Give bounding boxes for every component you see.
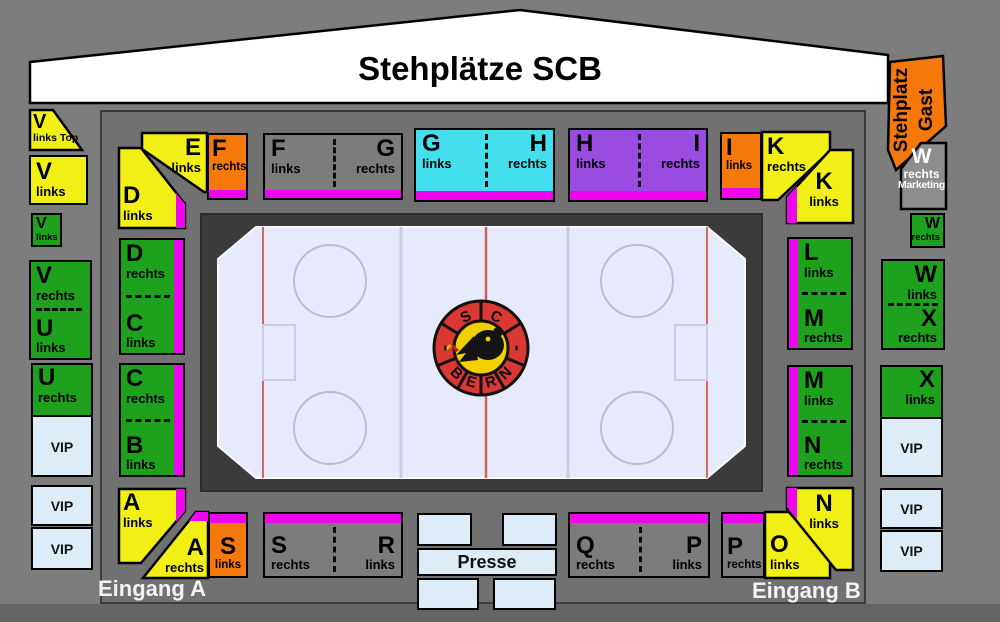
a-links-label: A links bbox=[123, 491, 153, 529]
magenta-strip bbox=[174, 365, 183, 475]
entrance-a-label: Eingang A bbox=[98, 578, 206, 601]
magenta-strip bbox=[789, 367, 798, 475]
section-c-rechts-b-links[interactable]: C rechts B links bbox=[119, 363, 185, 477]
magenta-strip bbox=[416, 191, 553, 200]
divider bbox=[639, 527, 642, 572]
press-box[interactable] bbox=[493, 578, 556, 610]
divider bbox=[638, 134, 641, 187]
divider bbox=[36, 308, 82, 311]
section-x-links[interactable]: X links bbox=[882, 367, 941, 419]
magenta-strip bbox=[722, 188, 760, 198]
section-f-links-g-rechts[interactable]: F links G rechts bbox=[263, 133, 403, 200]
divider bbox=[485, 134, 488, 187]
magenta-strip bbox=[789, 239, 798, 348]
scb-logo: S C - - B E R N bbox=[434, 301, 528, 395]
section-g-links-h-rechts[interactable]: G links H rechts bbox=[414, 128, 555, 202]
vip-box: VIP bbox=[33, 419, 91, 475]
a-rechts-label: A rechts bbox=[156, 536, 204, 574]
press-box[interactable] bbox=[417, 513, 472, 546]
press-box[interactable] bbox=[417, 578, 479, 610]
vip-box[interactable]: VIP bbox=[31, 527, 93, 570]
section-s-rechts-r-links[interactable]: S rechts R links bbox=[263, 512, 403, 578]
vip-box[interactable]: VIP bbox=[31, 485, 93, 526]
section-f-rechts[interactable]: F rechts bbox=[207, 133, 248, 200]
w-marketing-label: W rechts Marketing bbox=[898, 146, 945, 191]
vip-box[interactable]: VIP bbox=[880, 488, 943, 529]
divider bbox=[333, 527, 336, 572]
divider bbox=[802, 292, 846, 295]
section-x-links-vip[interactable]: X links VIP bbox=[880, 365, 943, 477]
e-links-label: E links bbox=[148, 136, 201, 174]
divider bbox=[126, 419, 170, 422]
entrance-b-label: Eingang B bbox=[752, 580, 861, 603]
banner-title: Stehplätze SCB bbox=[230, 52, 730, 86]
press-box[interactable] bbox=[502, 513, 557, 546]
n-links-label: N links bbox=[800, 492, 848, 530]
section-s-links[interactable]: S links bbox=[208, 512, 248, 578]
section-p-rechts[interactable]: P rechts bbox=[721, 512, 765, 578]
magenta-strip bbox=[570, 191, 706, 200]
section-v-rechts-u-links[interactable]: V rechts U links bbox=[29, 260, 92, 360]
section-m-links-n-rechts[interactable]: M links N rechts bbox=[787, 365, 853, 477]
section-w-links-x-rechts[interactable]: W links X rechts bbox=[881, 259, 945, 350]
section-h-links-i-rechts[interactable]: H links I rechts bbox=[568, 128, 708, 202]
seating-map: S C - - B E R N Stehplätze SCB St bbox=[0, 0, 1000, 622]
vip-box[interactable]: VIP bbox=[880, 530, 943, 572]
section-u-rechts-vip[interactable]: U rechts VIP bbox=[31, 363, 93, 477]
magenta-strip bbox=[723, 514, 763, 523]
divider bbox=[333, 139, 336, 187]
section-v-links-outer[interactable]: V links bbox=[29, 155, 88, 205]
section-u-rechts[interactable]: U rechts bbox=[33, 365, 91, 417]
section-d-rechts-c-links[interactable]: D rechts C links bbox=[119, 238, 185, 355]
press-main-box[interactable]: Presse bbox=[417, 548, 557, 576]
svg-text:-: - bbox=[434, 345, 454, 351]
v-links-top-label: V links Top bbox=[33, 112, 78, 144]
magenta-strip bbox=[174, 240, 183, 353]
section-l-links-m-rechts[interactable]: L links M rechts bbox=[787, 237, 853, 350]
magenta-strip bbox=[570, 514, 708, 523]
d-links-label: D links bbox=[123, 184, 153, 222]
section-w-rechts-small[interactable]: W rechts bbox=[910, 213, 945, 248]
svg-text:-: - bbox=[508, 345, 528, 351]
magenta-strip bbox=[209, 190, 246, 198]
magenta-strip bbox=[265, 190, 401, 198]
magenta-strip bbox=[265, 514, 401, 523]
section-q-rechts-p-links[interactable]: Q rechts P links bbox=[568, 512, 710, 578]
vip-box: VIP bbox=[882, 421, 941, 475]
o-links-label: O links bbox=[770, 533, 800, 571]
section-v-links-small[interactable]: V links bbox=[31, 213, 62, 247]
divider bbox=[126, 295, 170, 298]
divider bbox=[802, 420, 846, 423]
magenta-strip bbox=[210, 514, 246, 523]
k-links-label: K links bbox=[800, 170, 848, 208]
k-rechts-label: K rechts bbox=[767, 135, 806, 173]
section-i-links[interactable]: I links bbox=[720, 132, 762, 200]
